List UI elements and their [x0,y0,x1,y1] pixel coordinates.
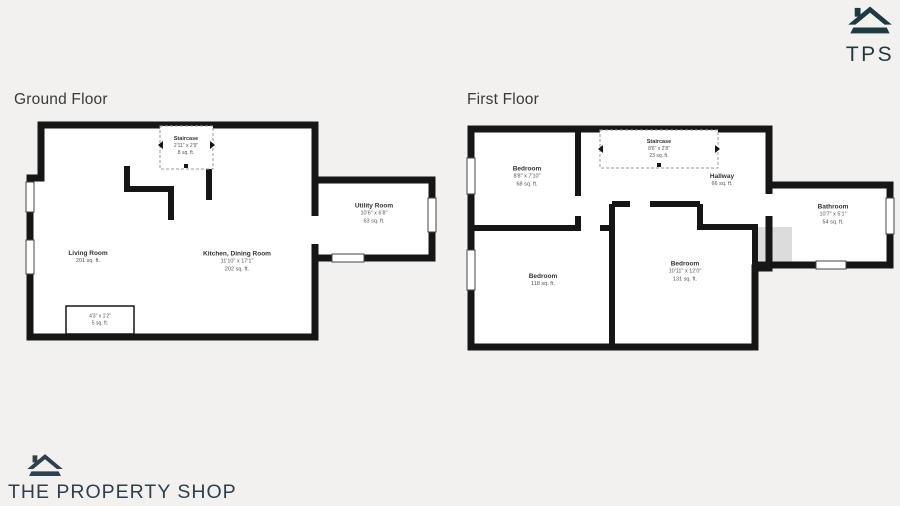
room-area: 118 sq. ft. [529,282,558,289]
footer-brand-name: THE PROPERTY SHOP [8,481,237,504]
room-name: Bedroom [529,273,558,281]
room-name: Utility Room [355,203,393,211]
first-floor-plan: Bedroom 8'8" x 7'10" 68 sq. ft. Staircas… [460,112,900,362]
room-dims: 10'7" x 5'1" [818,212,849,219]
room-area: 202 sq. ft. [203,266,271,273]
room-name: Staircase [647,139,671,146]
room-dims: 4'3" x 1'2" [89,314,111,321]
floorplan-page: TPS Ground Floor First Floor [0,0,900,506]
room-label-staircase-ff: Staircase 8'6" x 2'8" 23 sq. ft. [647,139,671,159]
tps-logo-text: TPS [840,43,900,67]
room-name: Hallway [710,173,734,181]
ground-floor-plan: Staircase 2'11" x 2'9" 8 sq. ft. Living … [10,112,450,362]
room-name: Bathroom [818,204,849,212]
room-area: 5 sq. ft. [89,320,111,327]
room-label-staircase-gf: Staircase 2'11" x 2'9" 8 sq. ft. [174,136,198,156]
tps-house-icon [844,5,896,37]
room-area: 8 sq. ft. [174,150,198,157]
room-label-bathroom: Bathroom 10'7" x 5'1" 54 sq. ft. [818,204,849,227]
ground-floor-title: Ground Floor [14,91,108,109]
room-area: 54 sq. ft. [818,219,849,226]
room-name: Bedroom [513,166,542,174]
first-floor-title: First Floor [467,91,539,109]
room-dims: 8'6" x 2'8" [647,146,671,153]
room-dims: 10'11" x 12'0" [669,269,702,276]
room-name: Kitchen, Dining Room [203,251,271,259]
room-dims: 11'10" x 17'1" [203,259,271,266]
room-area: 201 sq. ft. [68,259,107,266]
room-label-bedroom-front: Bedroom 8'8" x 7'10" 68 sq. ft. [513,166,542,189]
room-area: 68 sq. ft. [513,181,542,188]
room-name: Living Room [68,250,107,258]
first-floor-walls [460,112,900,362]
ground-floor-walls [10,112,450,362]
footer-logo: THE PROPERTY SHOP [8,453,237,504]
room-label-kitchen-dining: Kitchen, Dining Room 11'10" x 17'1" 202 … [203,251,271,274]
room-dims: 8'8" x 7'10" [513,174,542,181]
room-area: 66 sq. ft. [710,182,734,189]
tps-logo: TPS [840,5,900,67]
room-name: Staircase [174,136,198,143]
room-label-bedroom-left: Bedroom 118 sq. ft. [529,273,558,289]
room-label-utility-room: Utility Room 10'6" x 6'8" 63 sq. ft. [355,203,393,226]
room-dims: 2'11" x 2'9" [174,143,198,150]
room-area: 63 sq. ft. [355,218,393,225]
room-label-living-room: Living Room 201 sq. ft. [68,250,107,266]
room-label-bedroom-centre: Bedroom 10'11" x 12'0" 131 sq. ft. [669,261,702,284]
footer-house-icon [24,453,66,479]
room-label-bay-window: 4'3" x 1'2" 5 sq. ft. [89,314,111,327]
room-area: 23 sq. ft. [647,153,671,160]
room-label-hallway: Hallway 66 sq. ft. [710,173,734,189]
room-name: Bedroom [669,261,702,269]
room-dims: 10'6" x 6'8" [355,211,393,218]
room-area: 131 sq. ft. [669,276,702,283]
